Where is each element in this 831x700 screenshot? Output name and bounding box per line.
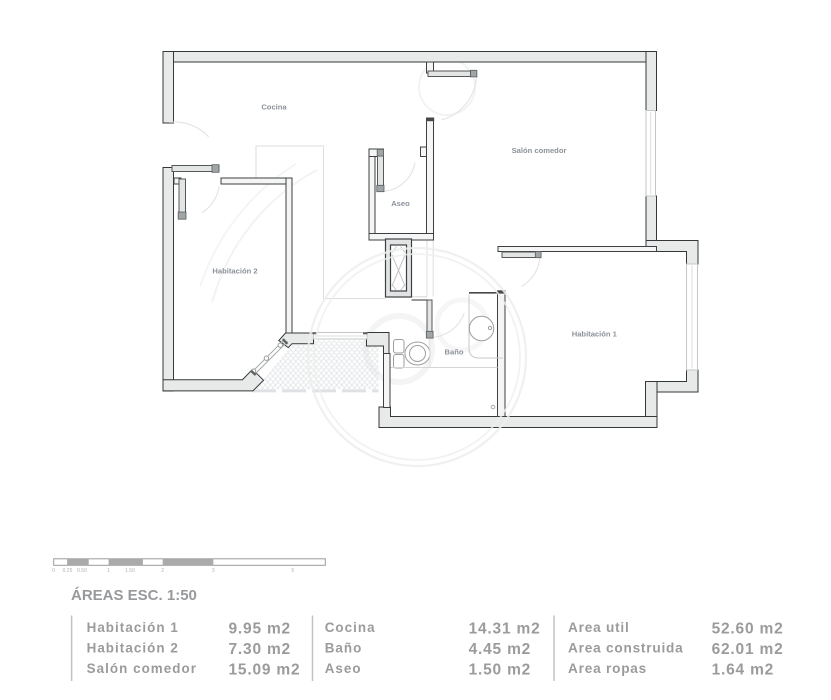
svg-text:Habitación 1: Habitación 1 (572, 330, 618, 339)
svg-text:Baño: Baño (445, 348, 464, 357)
svg-text:Habitación 2: Habitación 2 (212, 267, 257, 276)
svg-text:ÁREAS ESC. 1:50: ÁREAS ESC. 1:50 (71, 587, 197, 604)
svg-text:1.50 m2: 1.50 m2 (469, 661, 531, 678)
svg-text:Area util: Area util (568, 620, 630, 635)
svg-text:7.30 m2: 7.30 m2 (229, 641, 291, 658)
svg-text:1.64 m2: 1.64 m2 (712, 661, 774, 678)
svg-text:1.50: 1.50 (125, 568, 135, 574)
svg-text:Area construida: Area construida (568, 640, 684, 655)
svg-text:Area ropas: Area ropas (568, 661, 647, 676)
svg-text:1: 1 (107, 568, 110, 574)
svg-text:14.31 m2: 14.31 m2 (469, 621, 541, 638)
svg-text:52.60 m2: 52.60 m2 (712, 621, 784, 638)
svg-text:Aseo: Aseo (325, 661, 362, 676)
svg-text:Cocina: Cocina (325, 620, 376, 635)
svg-text:0.50: 0.50 (77, 568, 87, 574)
svg-text:Salón comedor: Salón comedor (512, 146, 567, 155)
svg-text:Habitación 2: Habitación 2 (87, 640, 179, 655)
svg-text:0: 0 (52, 568, 55, 574)
svg-text:9.95 m2: 9.95 m2 (229, 621, 291, 638)
svg-text:Aseo: Aseo (391, 199, 410, 208)
svg-text:2: 2 (161, 568, 164, 574)
svg-text:62.01 m2: 62.01 m2 (712, 641, 784, 658)
svg-text:Baño: Baño (325, 640, 363, 655)
svg-text:15.09 m2: 15.09 m2 (229, 661, 301, 678)
svg-text:4.45 m2: 4.45 m2 (469, 641, 531, 658)
svg-text:Salón comedor: Salón comedor (87, 661, 197, 676)
svg-text:Habitación 1: Habitación 1 (87, 620, 179, 635)
svg-text:Cocina: Cocina (261, 103, 287, 112)
svg-text:5: 5 (291, 568, 294, 574)
svg-text:0.25: 0.25 (63, 568, 73, 574)
svg-text:3: 3 (212, 568, 215, 574)
